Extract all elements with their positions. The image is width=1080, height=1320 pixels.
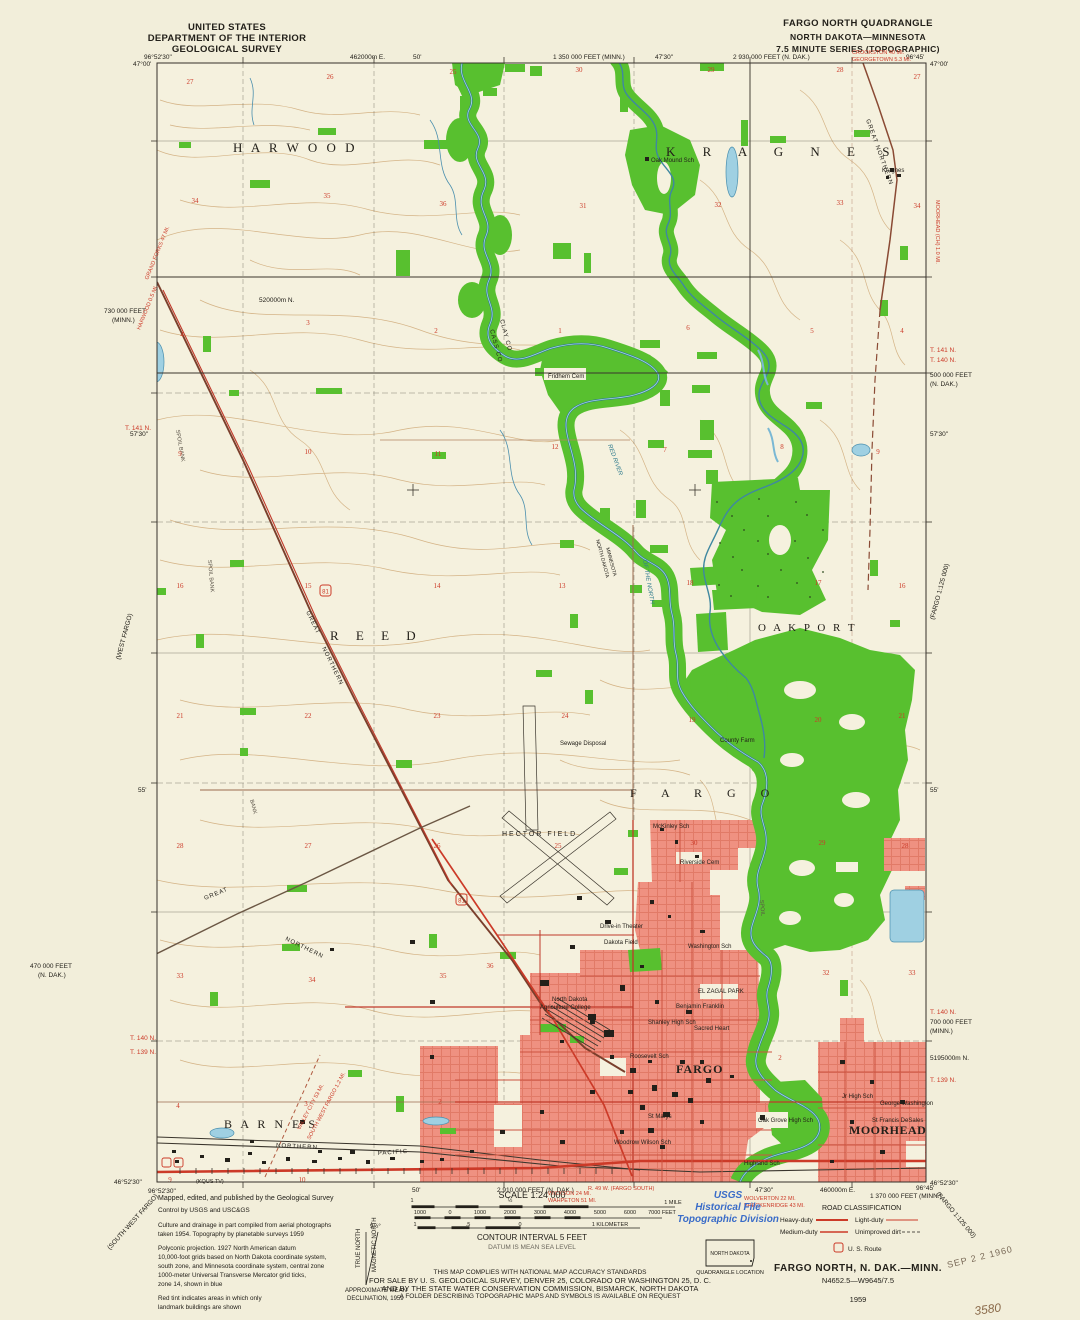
svg-text:Sewage Disposal: Sewage Disposal — [560, 741, 606, 747]
svg-text:Unimproved dirt: Unimproved dirt — [855, 1229, 901, 1236]
svg-text:Highland Sch: Highland Sch — [744, 1161, 780, 1167]
svg-text:K R A G N E S: K R A G N E S — [666, 144, 901, 159]
svg-text:1: 1 — [410, 1198, 413, 1204]
svg-text:NORTH DAKOTA: NORTH DAKOTA — [710, 1251, 750, 1257]
svg-text:2: 2 — [778, 1054, 782, 1062]
svg-text:21: 21 — [899, 712, 907, 720]
svg-text:Culture and drainage in part c: Culture and drainage in part compiled fr… — [158, 1222, 331, 1229]
svg-text:Dakota Field: Dakota Field — [604, 940, 638, 946]
svg-text:Topographic Division: Topographic Division — [677, 1214, 779, 1225]
svg-text:Oak Mound Sch: Oak Mound Sch — [651, 158, 694, 164]
svg-text:470 000 FEET: 470 000 FEET — [30, 963, 72, 970]
svg-text:Fridhem Cem: Fridhem Cem — [548, 374, 584, 380]
svg-text:FARGO: FARGO — [676, 1062, 723, 1076]
svg-text:(FARGO 1:125 000): (FARGO 1:125 000) — [934, 1191, 977, 1240]
svg-text:14: 14 — [434, 582, 442, 590]
svg-text:Jr High Sch: Jr High Sch — [842, 1094, 873, 1100]
svg-text:27: 27 — [187, 78, 195, 86]
svg-text:McKinley Sch: McKinley Sch — [653, 824, 689, 830]
svg-text:Benjamin Franklin: Benjamin Franklin — [676, 1004, 724, 1010]
svg-text:0: 0 — [518, 1222, 521, 1228]
svg-text:55': 55' — [930, 787, 938, 794]
svg-text:57'30": 57'30" — [130, 431, 149, 438]
svg-text:500 000 FEET: 500 000 FEET — [930, 372, 972, 379]
svg-text:81: 81 — [458, 899, 465, 905]
svg-text:35: 35 — [440, 972, 448, 980]
svg-text:(MINN.): (MINN.) — [112, 317, 135, 324]
svg-text:9½°: 9½° — [370, 1223, 381, 1230]
svg-text:15: 15 — [305, 582, 313, 590]
svg-text:Red tint indicates areas in wh: Red tint indicates areas in which only — [158, 1295, 262, 1302]
svg-text:3580: 3580 — [973, 1300, 1002, 1318]
svg-text:30: 30 — [691, 839, 699, 847]
svg-text:Medium-duty: Medium-duty — [780, 1229, 818, 1236]
svg-text:28: 28 — [177, 842, 185, 850]
svg-text:NORTH DAKOTA—MINNESOTA: NORTH DAKOTA—MINNESOTA — [790, 32, 926, 42]
svg-text:2000: 2000 — [504, 1210, 516, 1216]
svg-text:GEORGETOWN 5.3 MI.: GEORGETOWN 5.3 MI. — [852, 57, 912, 63]
svg-text:North Dakota: North Dakota — [552, 997, 588, 1003]
svg-text:21: 21 — [177, 712, 185, 720]
svg-text:DATUM IS MEAN SEA LEVEL: DATUM IS MEAN SEA LEVEL — [488, 1244, 576, 1251]
svg-text:34: 34 — [309, 976, 317, 984]
svg-text:(SOUTH WEST FARGO): (SOUTH WEST FARGO) — [106, 1193, 159, 1251]
svg-text:T. 140 N.: T. 140 N. — [930, 357, 956, 364]
svg-text:20: 20 — [815, 716, 823, 724]
svg-text:46°52'30": 46°52'30" — [114, 1178, 143, 1186]
svg-text:Control by USGS and USC&GS: Control by USGS and USC&GS — [158, 1207, 250, 1214]
svg-text:O A K P O R T: O A K P O R T — [758, 622, 857, 634]
svg-text:Agriculture College: Agriculture College — [540, 1005, 591, 1011]
svg-text:7000 FEET: 7000 FEET — [648, 1210, 676, 1216]
svg-text:Roosevelt Sch: Roosevelt Sch — [630, 1054, 669, 1060]
svg-text:36: 36 — [440, 200, 448, 208]
svg-text:4000: 4000 — [564, 1210, 576, 1216]
svg-text:17: 17 — [815, 579, 823, 587]
svg-text:6: 6 — [686, 324, 690, 332]
svg-text:33: 33 — [177, 972, 185, 980]
svg-text:36: 36 — [487, 962, 495, 970]
svg-text:8: 8 — [780, 443, 784, 451]
svg-text:23: 23 — [434, 712, 442, 720]
svg-text:(N. DAK.): (N. DAK.) — [38, 972, 66, 979]
svg-text:4: 4 — [900, 327, 904, 335]
svg-text:700 000 FEET: 700 000 FEET — [930, 1019, 972, 1026]
svg-text:1 350 000 FEET (MINN.): 1 350 000 FEET (MINN.) — [553, 54, 625, 61]
svg-text:1 KILOMETER: 1 KILOMETER — [592, 1222, 628, 1228]
svg-text:County Farm: County Farm — [720, 738, 755, 744]
svg-text:462000m E.: 462000m E. — [350, 54, 385, 61]
svg-text:1000: 1000 — [414, 1210, 426, 1216]
svg-text:½: ½ — [508, 1197, 513, 1204]
svg-text:T. 139 N.: T. 139 N. — [930, 1077, 956, 1084]
svg-text:(FARGO 1:125 000): (FARGO 1:125 000) — [929, 563, 951, 621]
svg-text:55': 55' — [138, 787, 146, 794]
svg-text:1000-meter Universal Transvers: 1000-meter Universal Transverse Mercator… — [158, 1272, 306, 1279]
svg-text:1: 1 — [413, 1222, 416, 1228]
svg-text:Sacred Heart: Sacred Heart — [694, 1026, 730, 1032]
svg-text:4: 4 — [176, 1102, 180, 1110]
svg-text:CONTOUR INTERVAL 5 FEET: CONTOUR INTERVAL 5 FEET — [477, 1233, 587, 1242]
svg-text:1000: 1000 — [474, 1210, 486, 1216]
svg-text:St Marys: St Marys — [648, 1114, 672, 1120]
svg-text:N4652.5—W9645/7.5: N4652.5—W9645/7.5 — [822, 1276, 894, 1285]
svg-text:33: 33 — [909, 969, 917, 977]
svg-text:5: 5 — [810, 327, 814, 335]
svg-text:26: 26 — [327, 73, 335, 81]
svg-text:24: 24 — [562, 712, 570, 720]
svg-text:U. S. Route: U. S. Route — [848, 1246, 882, 1253]
svg-text:THIS MAP COMPLIES WITH NATIONA: THIS MAP COMPLIES WITH NATIONAL MAP ACCU… — [434, 1269, 648, 1276]
svg-text:QUADRANGLE LOCATION: QUADRANGLE LOCATION — [696, 1270, 764, 1276]
svg-text:10: 10 — [305, 448, 313, 456]
svg-text:SEP 2 2 1960: SEP 2 2 1960 — [946, 1244, 1014, 1270]
svg-text:DECLINATION, 1959: DECLINATION, 1959 — [347, 1296, 404, 1302]
svg-text:T. 140 N.: T. 140 N. — [930, 1009, 956, 1016]
svg-text:32: 32 — [715, 201, 723, 209]
svg-text:30: 30 — [576, 66, 584, 74]
svg-text:Light-duty: Light-duty — [855, 1217, 884, 1224]
svg-text:25: 25 — [555, 842, 563, 850]
svg-text:FARGO NORTH QUADRANGLE: FARGO NORTH QUADRANGLE — [783, 18, 933, 29]
svg-text:50': 50' — [412, 1187, 420, 1194]
svg-text:18: 18 — [687, 579, 695, 587]
svg-text:81: 81 — [322, 590, 329, 596]
svg-text:31: 31 — [580, 202, 588, 210]
svg-text:29: 29 — [708, 66, 716, 74]
svg-text:T. 139 N.: T. 139 N. — [130, 1049, 156, 1056]
svg-text:96°52'30": 96°52'30" — [144, 53, 173, 61]
svg-text:730 000 FEET: 730 000 FEET — [104, 308, 146, 315]
svg-text:2 930 000 FEET (N. DAK.): 2 930 000 FEET (N. DAK.) — [733, 54, 810, 61]
svg-text:5195000m N.: 5195000m N. — [930, 1055, 969, 1062]
svg-text:EL ZAGAL PARK: EL ZAGAL PARK — [698, 989, 744, 995]
svg-text:2: 2 — [434, 327, 438, 335]
svg-text:33: 33 — [837, 199, 845, 207]
svg-text:460000m E.: 460000m E. — [820, 1187, 855, 1194]
svg-text:10: 10 — [299, 1176, 307, 1184]
svg-text:Oak Grove High Sch: Oak Grove High Sch — [758, 1118, 813, 1124]
svg-text:Heavy-duty: Heavy-duty — [780, 1217, 814, 1224]
svg-text:29: 29 — [819, 839, 827, 847]
svg-text:16: 16 — [899, 582, 907, 590]
svg-text:2: 2 — [438, 1098, 442, 1106]
svg-text:ROAD CLASSIFICATION: ROAD CLASSIFICATION — [822, 1205, 901, 1212]
svg-text:Mapped, edited, and published: Mapped, edited, and published by the Geo… — [158, 1195, 334, 1202]
svg-text:USGS: USGS — [714, 1190, 743, 1201]
svg-text:1: 1 — [558, 327, 562, 335]
svg-text:F A R G O: F A R G O — [630, 786, 780, 800]
svg-text:16: 16 — [177, 582, 185, 590]
svg-text:T. 140 N.: T. 140 N. — [130, 1035, 156, 1042]
svg-text:11: 11 — [435, 450, 442, 458]
svg-text:34: 34 — [192, 197, 200, 205]
svg-text:9: 9 — [168, 1176, 172, 1184]
svg-text:28: 28 — [837, 66, 845, 74]
svg-text:26: 26 — [434, 842, 442, 850]
svg-text:27: 27 — [305, 842, 313, 850]
svg-text:H A R W O O D: H A R W O O D — [233, 140, 357, 155]
svg-text:28: 28 — [902, 842, 910, 850]
svg-text:520000m N.: 520000m N. — [259, 297, 295, 304]
svg-text:5000: 5000 — [594, 1210, 606, 1216]
svg-text:34: 34 — [914, 202, 922, 210]
svg-text:9: 9 — [178, 450, 182, 458]
svg-text:25: 25 — [450, 68, 458, 76]
svg-text:1959: 1959 — [850, 1295, 867, 1304]
svg-text:St Francis DeSales: St Francis DeSales — [872, 1118, 923, 1124]
svg-text:4: 4 — [180, 331, 184, 339]
svg-text:UNITED STATES: UNITED STATES — [188, 22, 266, 33]
svg-text:Drive-in Theater: Drive-in Theater — [600, 924, 643, 930]
svg-text:12: 12 — [552, 443, 560, 451]
svg-text:35: 35 — [324, 192, 332, 200]
svg-text:.5: .5 — [466, 1222, 471, 1228]
svg-text:T. 141 N.: T. 141 N. — [930, 347, 956, 354]
svg-text:10,000-foot grids based on Nor: 10,000-foot grids based on North Dakota … — [158, 1254, 327, 1261]
svg-text:Shanley High Sch: Shanley High Sch — [648, 1020, 696, 1026]
svg-text:27: 27 — [914, 73, 922, 81]
svg-text:A FOLDER DESCRIBING TOPOGRAPHI: A FOLDER DESCRIBING TOPOGRAPHIC MAPS AND… — [400, 1293, 681, 1300]
svg-text:south zone, and Minnesota coor: south zone, and Minnesota coordinate sys… — [158, 1263, 325, 1270]
svg-text:57'30": 57'30" — [930, 431, 949, 438]
svg-text:(WEST FARGO): (WEST FARGO) — [115, 613, 134, 661]
svg-text:0: 0 — [448, 1210, 451, 1216]
svg-text:32: 32 — [823, 969, 831, 977]
svg-text:19: 19 — [689, 716, 697, 724]
svg-text:47'30": 47'30" — [655, 54, 674, 61]
svg-text:7: 7 — [663, 446, 667, 454]
svg-text:1 370 000 FEET (MINN.): 1 370 000 FEET (MINN.) — [870, 1193, 942, 1200]
svg-text:AND BY THE STATE WATER CONSERV: AND BY THE STATE WATER CONSERVATION COMM… — [382, 1284, 699, 1293]
svg-text:96°45': 96°45' — [916, 1184, 934, 1192]
svg-text:zone 14, shown in blue: zone 14, shown in blue — [158, 1281, 223, 1288]
svg-text:6000: 6000 — [624, 1210, 636, 1216]
svg-text:9: 9 — [876, 448, 880, 456]
svg-text:Riverside Cem: Riverside Cem — [680, 860, 719, 866]
svg-text:Historical File: Historical File — [695, 1202, 761, 1213]
svg-text:TRUE NORTH: TRUE NORTH — [356, 1229, 362, 1268]
svg-text:taken 1954. Topography by pl: taken 1954. Topography by planetable sur… — [158, 1231, 304, 1238]
svg-text:MOORHEAD (CH) 1.0 MI.: MOORHEAD (CH) 1.0 MI. — [934, 200, 940, 264]
svg-text:Woodrow Wilson Sch: Woodrow Wilson Sch — [614, 1140, 671, 1146]
svg-text:50': 50' — [413, 54, 421, 61]
svg-text:HECTOR FIELD: HECTOR FIELD — [502, 831, 577, 838]
svg-text:47°00': 47°00' — [930, 60, 948, 68]
svg-text:Polyconic projection. 1927: Polyconic projection. 1927 North America… — [158, 1245, 296, 1252]
svg-text:47'30": 47'30" — [755, 1187, 774, 1194]
svg-text:MOORHEAD: MOORHEAD — [849, 1123, 926, 1137]
svg-text:DEPARTMENT OF THE INTERIOR: DEPARTMENT OF THE INTERIOR — [148, 33, 307, 44]
svg-text:CROOKSTON 40 MI.: CROOKSTON 40 MI. — [852, 50, 905, 56]
svg-text:R. 49 W. (FARGO SOUTH): R. 49 W. (FARGO SOUTH) — [588, 1186, 654, 1192]
svg-text:George Washington: George Washington — [880, 1101, 933, 1107]
svg-text:13: 13 — [559, 582, 567, 590]
svg-text:22: 22 — [305, 712, 313, 720]
svg-text:(MINN.): (MINN.) — [930, 1028, 953, 1035]
svg-text:1 MILE: 1 MILE — [664, 1200, 682, 1206]
svg-text:landmark buildings are shown: landmark buildings are shown — [158, 1304, 242, 1311]
svg-text:R E E D: R E E D — [330, 628, 423, 643]
svg-text:(N. DAK.): (N. DAK.) — [930, 381, 958, 388]
svg-text:FARGO NORTH, N. DAK.—MINN.: FARGO NORTH, N. DAK.—MINN. — [774, 1263, 942, 1274]
svg-text:3000: 3000 — [534, 1210, 546, 1216]
svg-text:Washington Sch: Washington Sch — [688, 944, 731, 950]
svg-text:3: 3 — [306, 319, 310, 327]
svg-text:47°00': 47°00' — [133, 60, 151, 68]
svg-text:96°52'30": 96°52'30" — [148, 1187, 177, 1195]
svg-text:GEOLOGICAL SURVEY: GEOLOGICAL SURVEY — [172, 44, 283, 55]
